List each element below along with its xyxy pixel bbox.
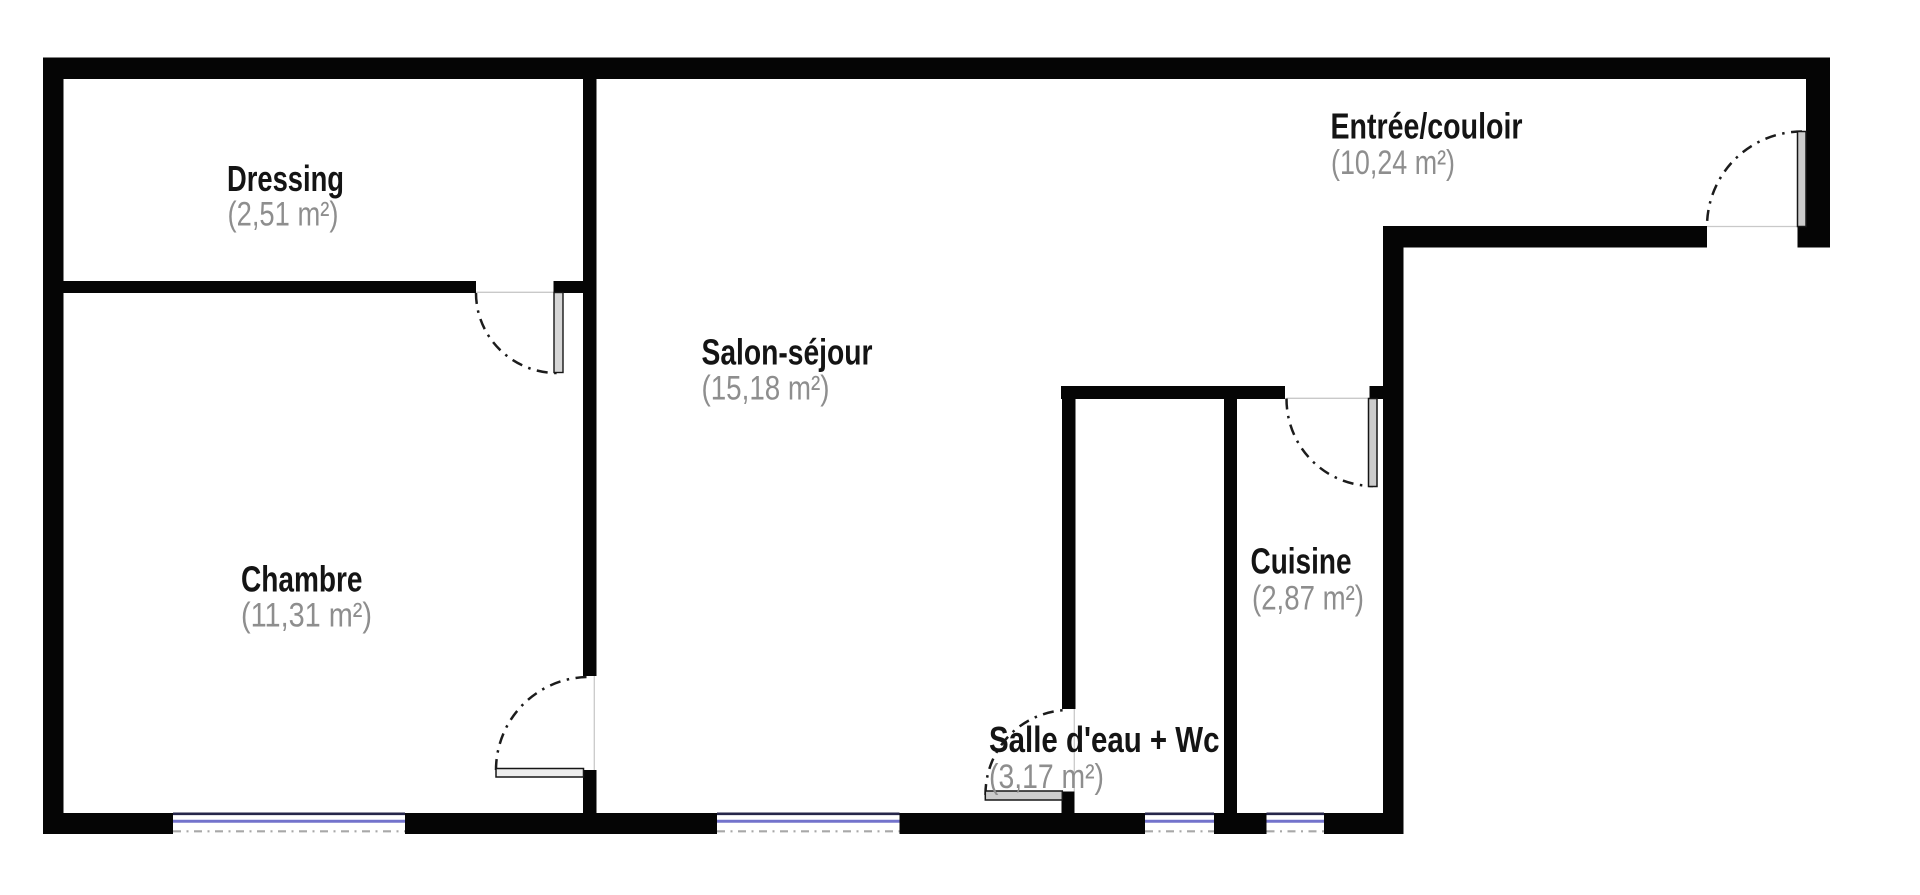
svg-text:(3,17 m²): (3,17 m²) (989, 758, 1104, 796)
svg-text:Salle d'eau + Wc: Salle d'eau + Wc (989, 719, 1220, 760)
svg-text:(15,18 m²): (15,18 m²) (702, 370, 830, 408)
svg-text:(10,24 m²): (10,24 m²) (1331, 144, 1455, 182)
svg-text:(2,87 m²): (2,87 m²) (1252, 580, 1364, 618)
svg-text:Chambre: Chambre (241, 559, 363, 600)
svg-text:(11,31 m²): (11,31 m²) (241, 597, 372, 635)
svg-text:Entrée/couloir: Entrée/couloir (1331, 106, 1523, 147)
svg-text:Dressing: Dressing (227, 158, 344, 199)
svg-text:Cuisine: Cuisine (1251, 541, 1352, 582)
svg-text:Salon-séjour: Salon-séjour (702, 332, 873, 373)
svg-text:(2,51 m²): (2,51 m²) (228, 196, 339, 234)
